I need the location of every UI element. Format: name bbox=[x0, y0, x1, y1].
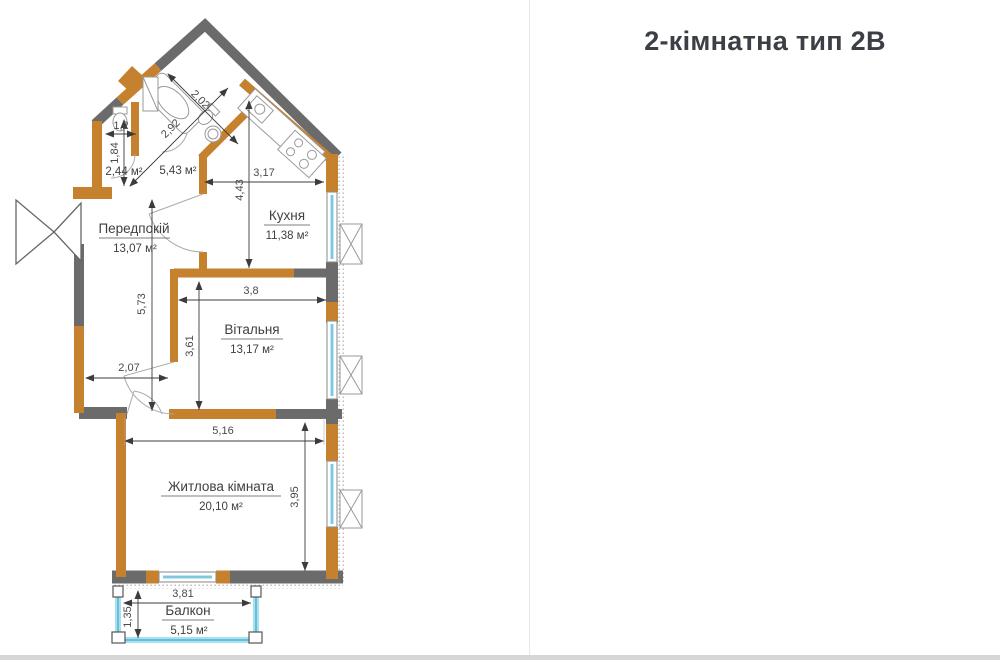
sink-icon bbox=[205, 126, 221, 142]
info-panel: 2-кімнатна тип 2В ЗАГАЛЬНА ПЛ. 67,16 м² … bbox=[530, 0, 1000, 655]
bottom-strip bbox=[0, 655, 1000, 660]
screenshot: 2,02 2,92 1,2 1,84 4,43 3,17 5,73 3,8 3,… bbox=[0, 0, 1000, 660]
dim-5-73: 5,73 bbox=[136, 293, 148, 314]
dim-1-84: 1,84 bbox=[109, 142, 121, 163]
shaft bbox=[143, 77, 158, 111]
dim-3-81: 3,81 bbox=[172, 588, 193, 600]
dim-3-61: 3,61 bbox=[184, 335, 196, 356]
entrance-door-icon bbox=[16, 200, 81, 264]
dim-2-07: 2,07 bbox=[118, 362, 139, 374]
dim-3-95: 3,95 bbox=[289, 486, 301, 507]
floor-plan: 2,02 2,92 1,2 1,84 4,43 3,17 5,73 3,8 3,… bbox=[2, 4, 526, 654]
room-label-bedroom: Житлова кімната bbox=[168, 479, 275, 494]
bedroom-window bbox=[327, 461, 337, 527]
room-label-hallway: Передпокій bbox=[98, 221, 169, 236]
room-area-bathroom: 5,43 м² bbox=[159, 165, 196, 177]
floor-plan-svg: 2,02 2,92 1,2 1,84 4,43 3,17 5,73 3,8 3,… bbox=[2, 4, 526, 654]
room-label-living: Вітальня bbox=[224, 322, 279, 337]
room-area-bedroom: 20,10 м² bbox=[199, 501, 243, 513]
dim-3-8: 3,8 bbox=[243, 285, 258, 297]
dim-3-17: 3,17 bbox=[253, 167, 274, 179]
apartment-title: 2-кімнатна тип 2В bbox=[530, 26, 1000, 57]
fixtures bbox=[113, 71, 326, 178]
room-area-kitchen: 11,38 м² bbox=[266, 230, 309, 242]
dim-5-16: 5,16 bbox=[212, 425, 233, 437]
room-area-hallway: 13,07 м² bbox=[113, 243, 157, 255]
room-area-balcony: 5,15 м² bbox=[170, 625, 207, 637]
living-window bbox=[327, 321, 337, 399]
dim-1-35: 1,35 bbox=[122, 606, 134, 627]
balcony-door-window bbox=[159, 572, 216, 582]
room-labels: Передпокій 13,07 м² Кухня 11,38 м² Вітал… bbox=[98, 165, 310, 637]
dim-1-2: 1,2 bbox=[113, 120, 128, 132]
room-area-living: 13,17 м² bbox=[230, 344, 274, 356]
kitchen-window bbox=[327, 192, 337, 262]
room-label-kitchen: Кухня bbox=[269, 208, 305, 223]
room-label-balcony: Балкон bbox=[165, 603, 210, 618]
windows bbox=[159, 192, 337, 582]
room-area-wc: 2,44 м² bbox=[105, 166, 142, 178]
dim-4-43: 4,43 bbox=[234, 179, 246, 200]
